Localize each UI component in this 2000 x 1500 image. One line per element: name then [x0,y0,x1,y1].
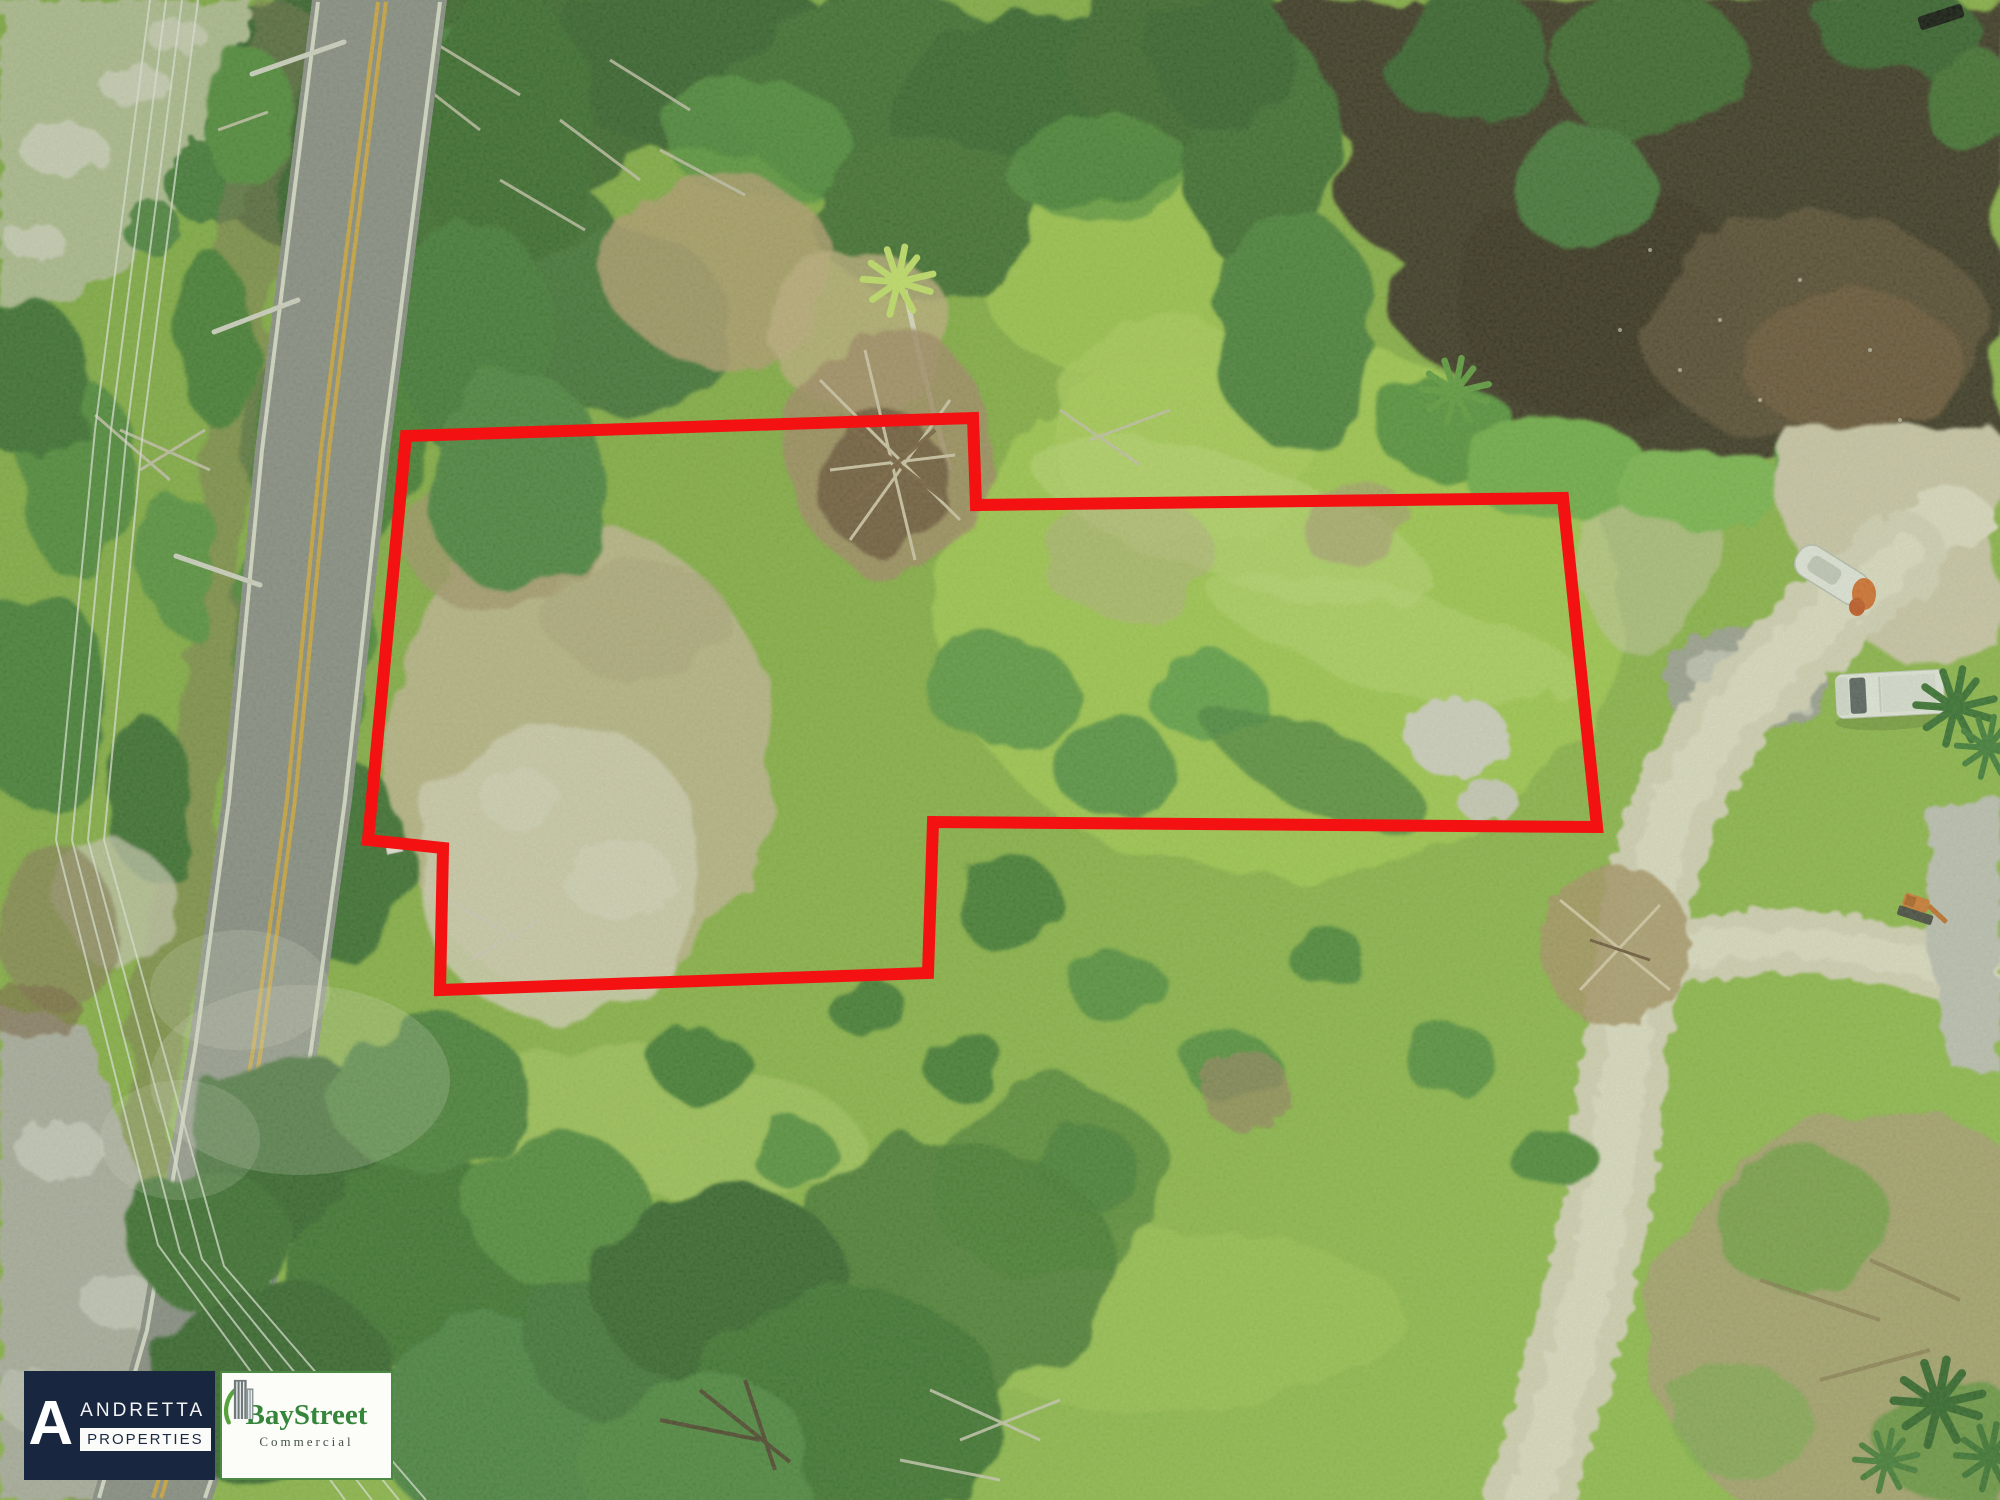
grain-overlay [0,0,2000,1500]
aerial-scene [0,0,2000,1500]
aerial-photo: A ANDRETTA PROPERTIES BayStreet Commerci… [0,0,2000,1500]
